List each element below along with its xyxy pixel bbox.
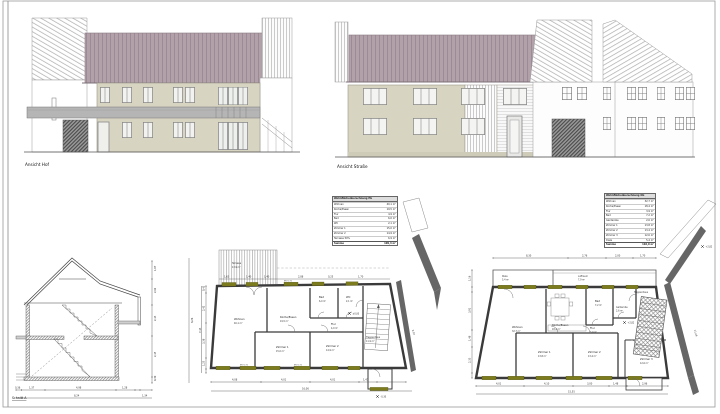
room-area: 13,4 m² bbox=[588, 355, 597, 358]
dim-text: 1,70 bbox=[640, 255, 646, 258]
room-area: 2,6 m² bbox=[616, 310, 623, 313]
brh-label: BRH 0,90 bbox=[240, 364, 248, 366]
stairs bbox=[32, 305, 112, 377]
dim-text: 4,01 bbox=[496, 383, 502, 386]
room-label: Bad bbox=[319, 295, 324, 299]
gable-strip bbox=[335, 22, 348, 82]
neighbor-roof-1 bbox=[530, 20, 592, 82]
room-area: 2,1 m² bbox=[346, 300, 353, 303]
dim-chain-right: 1,07 2,62 2,43 2,45 0,30 8,26 bbox=[151, 258, 194, 383]
upper-windows bbox=[100, 87, 247, 104]
dim-chain-left: 1,16 3,91 1,48 2,33 bbox=[469, 270, 473, 378]
dim-chain-left: 0,42 2,42 3,38 1,25 7,43 bbox=[199, 285, 207, 373]
dim-text: 0,42 bbox=[203, 285, 206, 291]
neighbor-walls-dark bbox=[660, 200, 716, 395]
dim-text: 2,43 bbox=[154, 315, 157, 321]
level-mark-text: +2,82 bbox=[628, 322, 635, 325]
dim-text: 1,40 bbox=[264, 276, 270, 279]
dim-text: 16,06 bbox=[302, 388, 309, 391]
main-roof bbox=[82, 33, 266, 83]
neighbor-roof-2 bbox=[603, 20, 692, 82]
room-area: 3,9 m² bbox=[590, 331, 597, 334]
elevation-hof-drawing: Ansicht Hof bbox=[10, 10, 310, 175]
table-body: Wohnen40,1 m²Küche/Essen19,5 m²Flur4,9 m… bbox=[333, 202, 397, 241]
dim-text: 2,45 bbox=[154, 351, 157, 357]
room-area: 32,7 m² bbox=[512, 330, 521, 333]
elevation-hof-label: Ansicht Hof bbox=[25, 162, 50, 167]
room-area: 14,9 m² bbox=[326, 349, 335, 352]
dim-text: 3,38 bbox=[203, 338, 206, 344]
garage-door bbox=[63, 120, 88, 152]
room-label: Wohnen bbox=[234, 317, 245, 321]
dim-text: 1,48 bbox=[613, 383, 619, 386]
room-area: 5,4 m² bbox=[502, 279, 509, 282]
dim-text: 2,42 bbox=[203, 305, 206, 311]
room-label: Bad bbox=[595, 299, 600, 303]
stair bbox=[364, 303, 390, 350]
room-area: 7,9 m² bbox=[578, 279, 585, 282]
room-area: 12,6 m² bbox=[640, 362, 649, 365]
sum-label: Summe bbox=[334, 242, 344, 246]
sum-value: 110,0 m² bbox=[642, 243, 654, 247]
dim-text: 4,98 bbox=[76, 387, 82, 390]
room-area: 6,0 m² bbox=[319, 300, 326, 303]
roof-outline bbox=[24, 258, 140, 305]
room-label: Zimmer 1 bbox=[538, 350, 551, 354]
dim-text: 2,00 bbox=[615, 255, 621, 258]
walls-floors bbox=[16, 297, 141, 381]
dim-text: 2,88 bbox=[298, 276, 304, 279]
elevation-strasse-label: Ansicht Straße bbox=[337, 164, 368, 169]
room-area: 18,4 m² bbox=[552, 328, 561, 331]
terrace bbox=[219, 250, 390, 286]
level-mark-text: +2,82 bbox=[706, 246, 713, 249]
neighbor-right bbox=[530, 20, 695, 157]
neighbor-left bbox=[32, 18, 88, 152]
room-label: Küche/Essen bbox=[552, 323, 569, 327]
dim-text: 1,25 bbox=[203, 360, 206, 366]
dim-text: 1,63 bbox=[224, 276, 230, 279]
room-area: 11,9 m² bbox=[366, 340, 375, 343]
table-body: Wohnen32,7 m²Küche/Essen18,4 m²Flur3,9 m… bbox=[605, 199, 655, 243]
room-area: 15,0 m² bbox=[276, 350, 285, 353]
balcony-band bbox=[27, 107, 260, 118]
dim-text: 4,10 bbox=[544, 383, 550, 386]
level-mark-icon bbox=[701, 245, 704, 248]
dim-text: 2,96 bbox=[642, 383, 648, 386]
room-area: 19,5 m² bbox=[280, 320, 289, 323]
upper-strip: Diele 5,4 m² Luftraum 7,9 m² bbox=[493, 270, 656, 287]
dim-text: 2,33 bbox=[469, 357, 472, 363]
room-schedule-eg: Wohnflächenberechnung EG Wohnen40,1 m²Kü… bbox=[332, 196, 398, 246]
dim-chain-top: 8,30 2,76 2,00 1,70 bbox=[493, 255, 656, 259]
dim-text: 1,70 bbox=[358, 276, 364, 279]
room-label: Küche/Essen bbox=[280, 315, 297, 319]
dim-text: 8,24 bbox=[74, 395, 80, 398]
balcony-slab bbox=[16, 336, 26, 339]
dim-text: 0,30 bbox=[154, 375, 157, 381]
dim-text: 4,01 bbox=[330, 379, 336, 382]
room-label: Treppenhaus bbox=[634, 291, 649, 294]
dim-text: 4,01 bbox=[281, 379, 287, 382]
room-schedule-og: Wohnflächenberechnung OG Wohnen32,7 m²Kü… bbox=[604, 193, 656, 248]
dim-text: 1,47 bbox=[363, 379, 369, 382]
room-label: Treppenhaus bbox=[366, 336, 381, 339]
brh-label: BRH 0,90 bbox=[294, 364, 302, 366]
dim-text: 3,91 bbox=[469, 307, 472, 313]
dim-text: 4,08 bbox=[232, 379, 238, 382]
room-label: Zimmer 2 bbox=[326, 344, 339, 348]
plan-og-drawing: Diele 5,4 m² Luftraum 7,9 m² bbox=[468, 190, 720, 414]
level-mark-text: -0,30 bbox=[381, 396, 387, 399]
sum-label: Summe bbox=[606, 243, 616, 247]
dim-text-diagonal: 11,46 bbox=[693, 329, 698, 337]
dim-text-diagonal: 9,07 bbox=[411, 329, 415, 335]
dim-text: 2,62 bbox=[154, 287, 157, 293]
dim-text: 15,55 bbox=[568, 391, 575, 394]
room-label: Zimmer 1 bbox=[276, 345, 289, 349]
plan-eg-drawing: Wohnen 40,1 m² Küche/Essen 19,5 m² Flur … bbox=[200, 192, 462, 414]
dim-chain-bottom: 0,36 1,37 4,98 1,28 8,24 1,34 bbox=[15, 387, 152, 398]
room-label: Wohnen bbox=[512, 325, 523, 329]
table-sum-row: Summe 110,0 m² bbox=[605, 242, 655, 247]
room-area: 13,8 m² bbox=[538, 355, 547, 358]
section-drawing: 1,07 2,62 2,43 2,45 0,30 8,26 0,36 1,37 … bbox=[12, 233, 212, 411]
dim-text: 1,28 bbox=[122, 387, 128, 390]
dim-text: 8,30 bbox=[526, 255, 532, 258]
dim-text: 2,76 bbox=[582, 255, 588, 258]
elevation-strasse-drawing: Ansicht Straße bbox=[335, 12, 710, 172]
dim-text: 0,25 bbox=[328, 276, 334, 279]
dim-text: 1,37 bbox=[29, 387, 35, 390]
room-area: 13,9 m² bbox=[232, 266, 241, 269]
dim-text: 1,40 bbox=[246, 276, 252, 279]
dim-text: 0,36 bbox=[15, 387, 21, 390]
room-label: Zimmer 2 bbox=[588, 350, 601, 354]
section-label: Schnitt A bbox=[12, 396, 27, 400]
main-roof bbox=[346, 35, 546, 82]
door bbox=[98, 122, 109, 152]
room-area: 40,1 m² bbox=[234, 322, 243, 325]
garage-door bbox=[552, 119, 585, 157]
main-wall bbox=[348, 85, 543, 157]
dim-text: 7,43 bbox=[199, 327, 202, 333]
brh-label: BRH 0,90 bbox=[284, 280, 292, 282]
room-label: Zimmer 3 bbox=[640, 357, 653, 361]
room-area: 4,9 m² bbox=[331, 327, 338, 330]
sum-value: 109,4 m² bbox=[384, 242, 396, 246]
dim-text: 1,48 bbox=[469, 335, 472, 341]
drawing-sheet: Ansicht Hof bbox=[0, 0, 720, 414]
dim-text: 1,16 bbox=[469, 275, 472, 281]
room-label: WC bbox=[346, 295, 351, 299]
room-area: 7,2 m² bbox=[595, 304, 602, 307]
vestibule bbox=[368, 369, 392, 389]
room-label: Terrasse bbox=[232, 262, 242, 265]
dim-text: 1,34 bbox=[142, 395, 148, 398]
level-mark-icon bbox=[376, 395, 379, 398]
dim-text: 8,26 bbox=[191, 317, 194, 323]
dim-text: 1,07 bbox=[154, 265, 157, 271]
table-sum-row: Summe 109,4 m² bbox=[333, 241, 397, 246]
level-mark-text: ±0,00 bbox=[353, 313, 360, 316]
dim-text: 3,00 bbox=[587, 383, 593, 386]
